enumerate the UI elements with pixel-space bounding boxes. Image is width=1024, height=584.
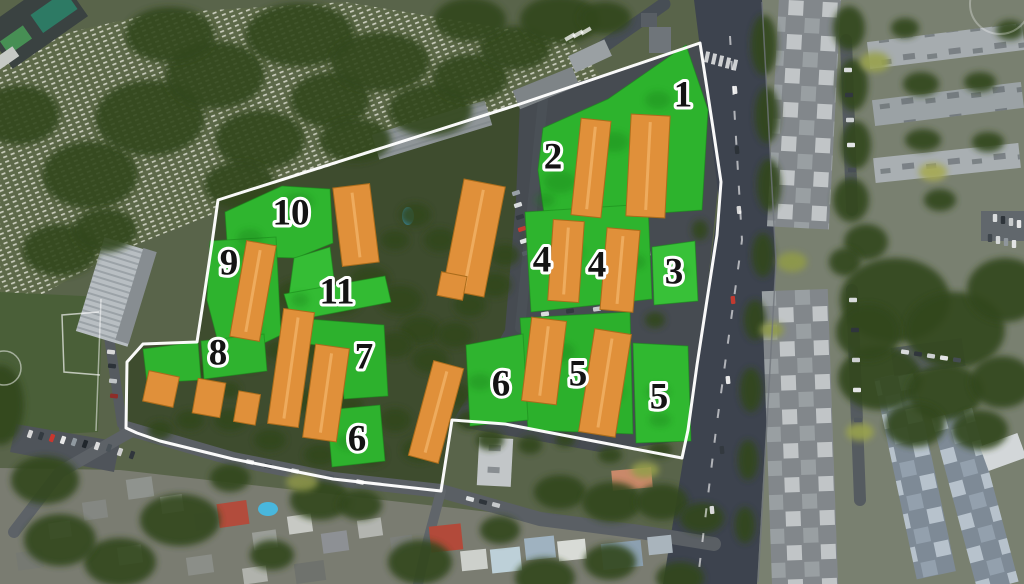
zone-label-1: 1 (674, 75, 693, 116)
parked-car (844, 68, 852, 72)
tree-canopy (738, 440, 758, 480)
tree-canopy (434, 0, 506, 42)
tree-canopy (905, 129, 941, 151)
zone-label-5: 5 (569, 354, 588, 395)
tree-canopy (381, 230, 409, 250)
tree-canopy (140, 494, 220, 546)
building-8-house-a (143, 371, 180, 408)
house (357, 517, 383, 538)
tree-canopy (972, 132, 1004, 152)
house (524, 535, 556, 560)
parked-car (730, 296, 735, 304)
tree-canopy (480, 516, 520, 544)
zone-label-7: 7 (355, 337, 374, 378)
tree-canopy (891, 18, 919, 38)
building-central-wing-footprint (437, 272, 467, 301)
aerial-site-plan: 1234455667891011 (0, 0, 1024, 584)
tree-canopy (964, 72, 996, 92)
building-central-wing (437, 272, 467, 301)
parked-car (996, 236, 1000, 244)
parked-car (1004, 238, 1008, 246)
parked-car (1001, 216, 1005, 224)
building-8-house-a-footprint (143, 371, 180, 408)
tree-canopy (996, 20, 1024, 40)
building-2-east (626, 114, 670, 218)
tree-canopy (919, 163, 947, 181)
parked-car (847, 143, 855, 147)
parked-car (1017, 220, 1021, 228)
pool-house (258, 502, 278, 516)
parked-car (109, 378, 117, 383)
parked-car (107, 349, 115, 354)
tree-canopy (631, 462, 659, 478)
parked-car (110, 393, 118, 398)
tree-canopy (645, 312, 665, 328)
building-4-west (548, 220, 585, 303)
tree-canopy (399, 203, 431, 227)
parked-car (725, 376, 730, 384)
tower-northeast (649, 27, 671, 53)
zone-tree-texture (535, 193, 555, 207)
tree-canopy (833, 6, 865, 50)
parked-car (993, 214, 997, 222)
tree-canopy (125, 7, 215, 63)
tree-canopy (254, 429, 286, 451)
tree-canopy (24, 514, 96, 566)
zone-label-6: 6 (492, 364, 511, 405)
tree-canopy (952, 410, 1008, 450)
zone-label-9: 9 (220, 243, 239, 284)
tree-canopy (518, 436, 542, 454)
house (294, 560, 326, 584)
tree-canopy (636, 484, 688, 520)
tree-canopy (841, 121, 871, 169)
parked-car (108, 363, 116, 368)
zone-label-6: 6 (348, 419, 367, 460)
building-8-house-c (233, 391, 260, 425)
zone-label-3: 3 (665, 252, 684, 293)
tree-canopy (476, 430, 504, 450)
tree-canopy (692, 220, 708, 240)
parked-car (719, 446, 724, 454)
tree-canopy (757, 159, 781, 211)
tree-canopy (215, 110, 305, 170)
house (126, 476, 155, 499)
zone-label-10: 10 (273, 193, 310, 234)
tree-canopy (860, 52, 890, 72)
tree-canopy (846, 423, 874, 441)
zone-label-5: 5 (650, 377, 669, 418)
tree-canopy (338, 490, 382, 520)
zone-tree-texture (291, 293, 309, 307)
tree-canopy (584, 544, 636, 580)
house (82, 499, 108, 520)
parked-car (848, 168, 856, 172)
building-8-house-b-footprint (192, 378, 226, 417)
parked-car (988, 234, 992, 242)
parked-car (849, 298, 857, 302)
parked-car (854, 418, 862, 422)
tower-top (641, 13, 657, 27)
tree-canopy (885, 403, 945, 447)
house-red (216, 500, 249, 528)
house (557, 539, 587, 562)
parked-car (853, 388, 861, 392)
building-8-house-b (192, 378, 226, 417)
parked-car (1012, 240, 1016, 248)
tree-canopy (250, 540, 294, 570)
tree-canopy (735, 507, 755, 543)
house (186, 554, 214, 575)
tree-canopy (924, 189, 956, 211)
tree-canopy (752, 233, 774, 277)
parked-car (851, 328, 859, 332)
zone-label-4: 4 (588, 245, 607, 286)
parked-car (1009, 218, 1013, 226)
tree-canopy (534, 475, 586, 509)
parked-car (845, 93, 853, 97)
tree-canopy (437, 322, 473, 348)
tree-canopy (836, 304, 900, 360)
tree-canopy (73, 208, 137, 252)
building-8-house-c-footprint (233, 391, 260, 425)
house (460, 549, 488, 572)
tree-canopy (148, 421, 172, 439)
house (321, 530, 350, 553)
tree-canopy (388, 540, 452, 584)
parked-car (846, 118, 854, 122)
zone-tree-texture (645, 91, 671, 109)
parked-car (852, 358, 860, 362)
tree-canopy (582, 482, 642, 522)
zone-tree-texture (468, 374, 492, 390)
zone-label-4: 4 (533, 240, 552, 281)
tree-canopy (903, 72, 939, 96)
tree-canopy (11, 456, 79, 504)
tree-canopy (210, 464, 250, 492)
tree-canopy (740, 368, 762, 412)
zone-label-2: 2 (544, 137, 563, 178)
house (647, 535, 673, 555)
tree-canopy (379, 408, 411, 432)
tree-canopy (491, 244, 519, 266)
parked-car (734, 146, 739, 154)
parked-car (709, 506, 714, 514)
tree-canopy (680, 503, 724, 533)
aerial-map-canvas: 1234455667891011 (0, 0, 1024, 584)
tree-canopy (598, 447, 622, 463)
zone-label-8: 8 (209, 333, 228, 374)
house (490, 546, 522, 573)
tree-canopy (777, 252, 807, 272)
tree-canopy (833, 178, 869, 222)
zone-label-11: 11 (320, 272, 355, 313)
tree-canopy (330, 32, 430, 92)
